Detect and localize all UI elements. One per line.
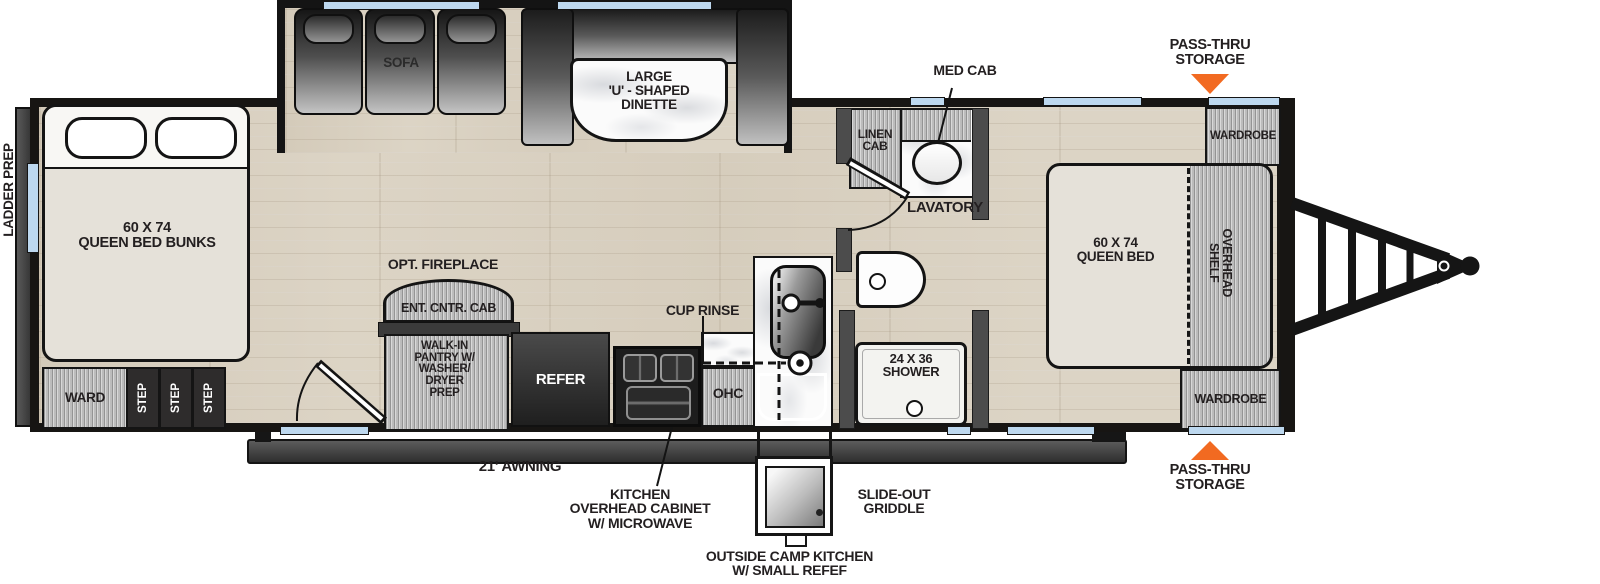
awning-bar	[247, 439, 1127, 464]
entry-step: STEP	[159, 367, 193, 429]
window	[1188, 426, 1285, 435]
ent-cntr-cab: ENT. CNTR. CAB	[383, 279, 514, 323]
shower-label: 24 X 36 SHOWER	[861, 352, 961, 379]
pillow	[65, 117, 147, 159]
shower-drain	[906, 400, 923, 417]
ward-cabinet: WARD	[42, 367, 128, 429]
wardrobe-rear: WARDROBE	[1205, 107, 1281, 166]
refrigerator: REFER	[511, 332, 610, 427]
bath-wall	[972, 310, 989, 429]
sofa-headrest	[446, 14, 497, 44]
counter-wing	[701, 332, 755, 367]
queen-bed	[1046, 163, 1273, 369]
entry-step: STEP	[192, 367, 226, 429]
hitch-frame-icon	[1292, 203, 1480, 330]
medicine-cabinet	[902, 110, 971, 142]
window	[557, 1, 712, 10]
window	[910, 97, 945, 106]
griddle-latch	[785, 534, 807, 547]
window	[947, 426, 971, 435]
griddle-connector	[829, 431, 832, 457]
sofa-cushion	[294, 8, 363, 115]
lavatory-label: LAVATORY	[885, 200, 1005, 215]
awning-label: 21' AWNING	[455, 459, 585, 474]
pass-thru-top-label: PASS-THRU STORAGE	[1155, 38, 1265, 68]
window	[323, 1, 480, 10]
bath-wall	[839, 310, 855, 429]
entry-step: STEP	[126, 367, 160, 429]
sofa-cushion	[437, 8, 506, 115]
ward-label: WARD	[65, 391, 105, 405]
griddle-passthru-outline	[757, 373, 827, 421]
linen-cab-label: LINEN CAB	[846, 128, 904, 152]
queen-bed-label: 60 X 74 QUEEN BED	[1058, 236, 1173, 264]
window	[1208, 97, 1280, 106]
range-stove	[613, 346, 701, 427]
wardrobe-label: WARDROBE	[1195, 393, 1267, 406]
sofa-headrest	[374, 14, 425, 44]
ohc-label: OHC	[701, 386, 755, 400]
opt-fireplace-label: OPT. FIREPLACE	[368, 257, 518, 271]
overhead-shelf-label: OVERHEAD SHELF	[1207, 203, 1233, 323]
griddle-knob	[816, 509, 823, 516]
pass-thru-arrow-up-icon	[1191, 441, 1229, 460]
window	[1043, 97, 1142, 106]
oven-grate	[626, 386, 691, 420]
med-cab-label: MED CAB	[920, 63, 1010, 77]
slide-out-griddle-label: SLIDE-OUT GRIDDLE	[838, 487, 950, 516]
burner-grate	[660, 354, 694, 382]
dinette-label: LARGE 'U' - SHAPED DINETTE	[593, 70, 705, 111]
pantry-label: WALK-IN PANTRY W/ WASHER/ DRYER PREP	[394, 341, 495, 400]
ladder-prep-label: LADDER PREP	[2, 130, 18, 250]
toilet	[856, 251, 926, 308]
pillow	[155, 117, 237, 159]
sofa-label: SOFA	[366, 56, 436, 70]
griddle-connector	[757, 431, 760, 457]
burner-grate	[623, 354, 657, 382]
pass-thru-bottom-label: PASS-THRU STORAGE	[1155, 463, 1265, 493]
cup-rinse-label: CUP RINSE	[655, 303, 750, 317]
kitchen-sink	[770, 265, 826, 359]
refer-label: REFER	[536, 372, 585, 387]
outside-camp-kitchen-label: OUTSIDE CAMP KITCHEN W/ SMALL REFEF	[697, 549, 882, 578]
bunk-bed-label: 60 X 74 QUEEN BED BUNKS	[58, 221, 236, 251]
kitchen-overhead-cabinet-label: KITCHEN OVERHEAD CABINET W/ MICROWAVE	[555, 487, 725, 530]
bed-shelf-divider	[1187, 168, 1190, 364]
hitch-ball-icon	[1461, 257, 1480, 276]
window	[1007, 426, 1095, 435]
lavatory-sink	[912, 141, 962, 185]
sofa-headrest	[303, 14, 354, 44]
griddle-surface	[765, 466, 825, 528]
outside-griddle-box	[755, 456, 833, 536]
entry-door-sill	[280, 426, 369, 435]
wardrobe-label: WARDROBE	[1210, 131, 1276, 143]
pass-thru-arrow-down-icon	[1191, 74, 1229, 94]
floorplan-scene: LADDER PREP SOFA LARGE 'U' - SHAPED DINE…	[0, 0, 1600, 584]
toilet-flush	[869, 273, 886, 290]
wardrobe-front: WARDROBE	[1180, 369, 1281, 430]
dinette-right-bench	[736, 8, 789, 146]
dinette-left-bench	[521, 8, 574, 146]
ent-cntr-cab-label: ENT. CNTR. CAB	[401, 302, 496, 320]
rear-window	[27, 163, 39, 253]
bath-wall	[836, 228, 852, 272]
